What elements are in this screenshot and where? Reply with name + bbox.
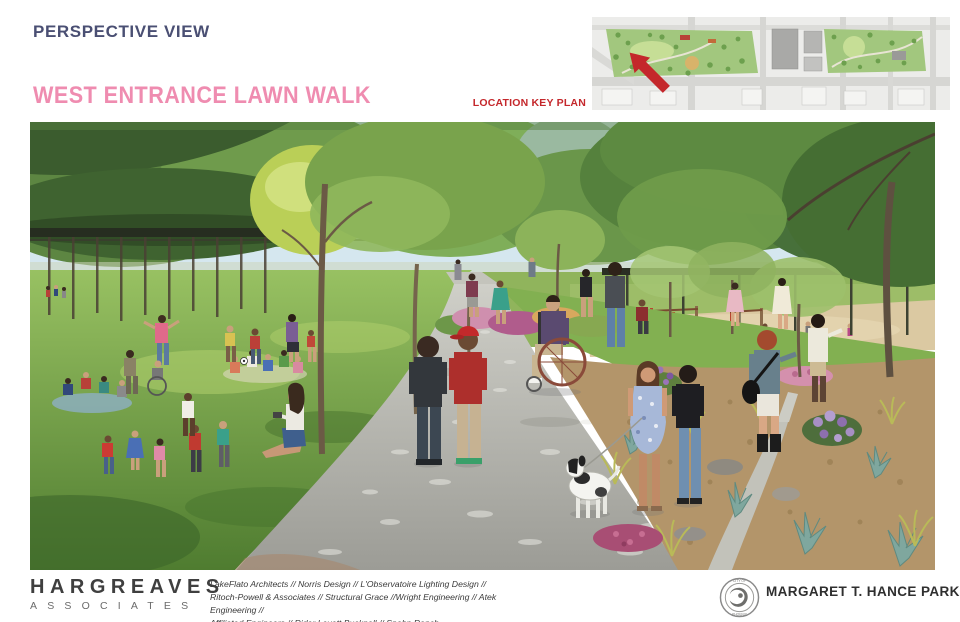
- credits-line-1: LakeFlato Architects // Norris Design //…: [210, 578, 540, 591]
- key-plan-east-park: [824, 29, 926, 73]
- consultant-credits: LakeFlato Architects // Norris Design //…: [210, 578, 540, 622]
- firm-name: HARGREAVES: [30, 577, 205, 597]
- perspective-rendering: [30, 122, 935, 570]
- credits-line-2: Ritoch-Powell & Associates // Structural…: [210, 591, 540, 617]
- key-plan-west-park: [606, 29, 758, 77]
- page-title: PERSPECTIVE VIEW: [33, 22, 210, 42]
- location-key-plan-map: [592, 17, 950, 110]
- city-of-phoenix-seal-icon: CITY OF PHOENIX: [719, 577, 760, 618]
- firm-subtitle: ASSOCIATES: [30, 601, 205, 612]
- firm-wordmark: HARGREAVES ASSOCIATES: [30, 577, 205, 612]
- location-key-plan-label: LOCATION KEY PLAN: [470, 97, 586, 109]
- view-title: WEST ENTRANCE LAWN WALK: [33, 82, 371, 110]
- presentation-board: PERSPECTIVE VIEW WEST ENTRANCE LAWN WALK…: [0, 0, 960, 622]
- park-name: MARGARET T. HANCE PARK: [766, 584, 960, 599]
- seal-text-bottom: PHOENIX: [732, 613, 748, 617]
- seal-text-top: CITY OF: [733, 579, 746, 583]
- credits-line-3: Affiliated Engineers // Rider Levett Buc…: [210, 617, 540, 622]
